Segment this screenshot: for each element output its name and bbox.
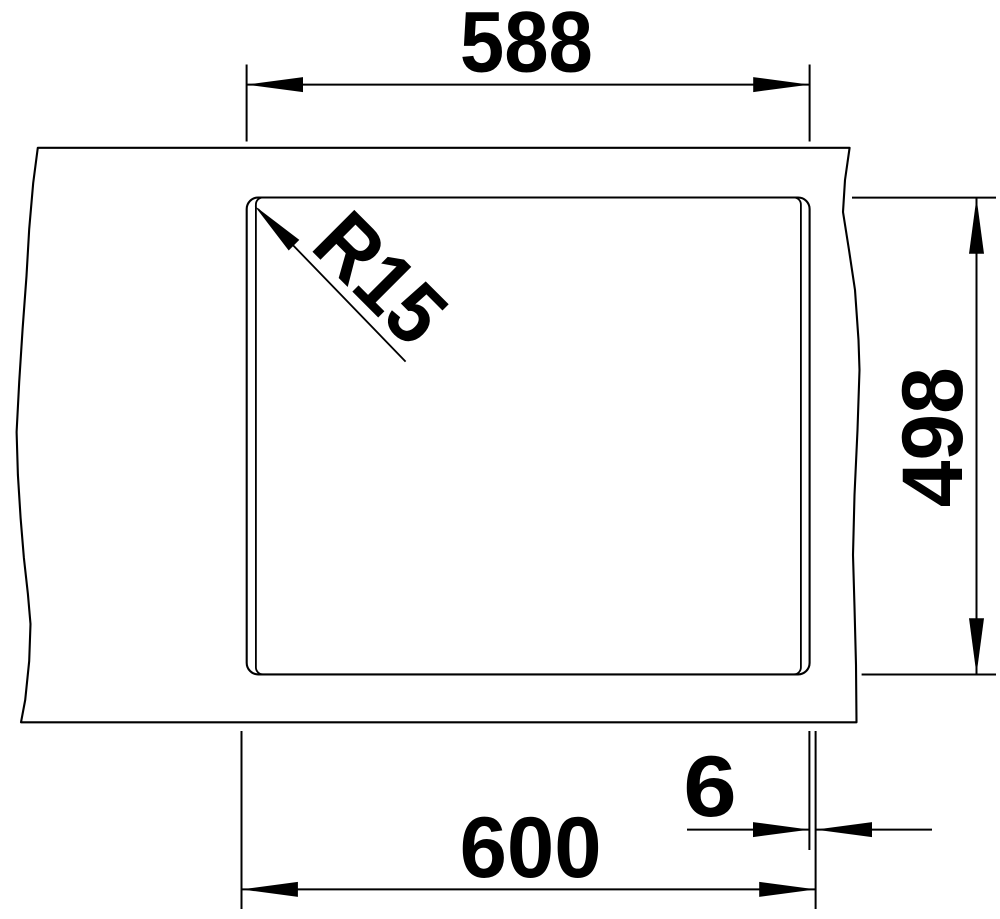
svg-text:6: 6 xyxy=(683,739,737,835)
svg-text:600: 600 xyxy=(460,800,602,896)
svg-text:R15: R15 xyxy=(295,194,465,364)
svg-text:498: 498 xyxy=(885,367,981,507)
svg-text:588: 588 xyxy=(460,0,593,91)
